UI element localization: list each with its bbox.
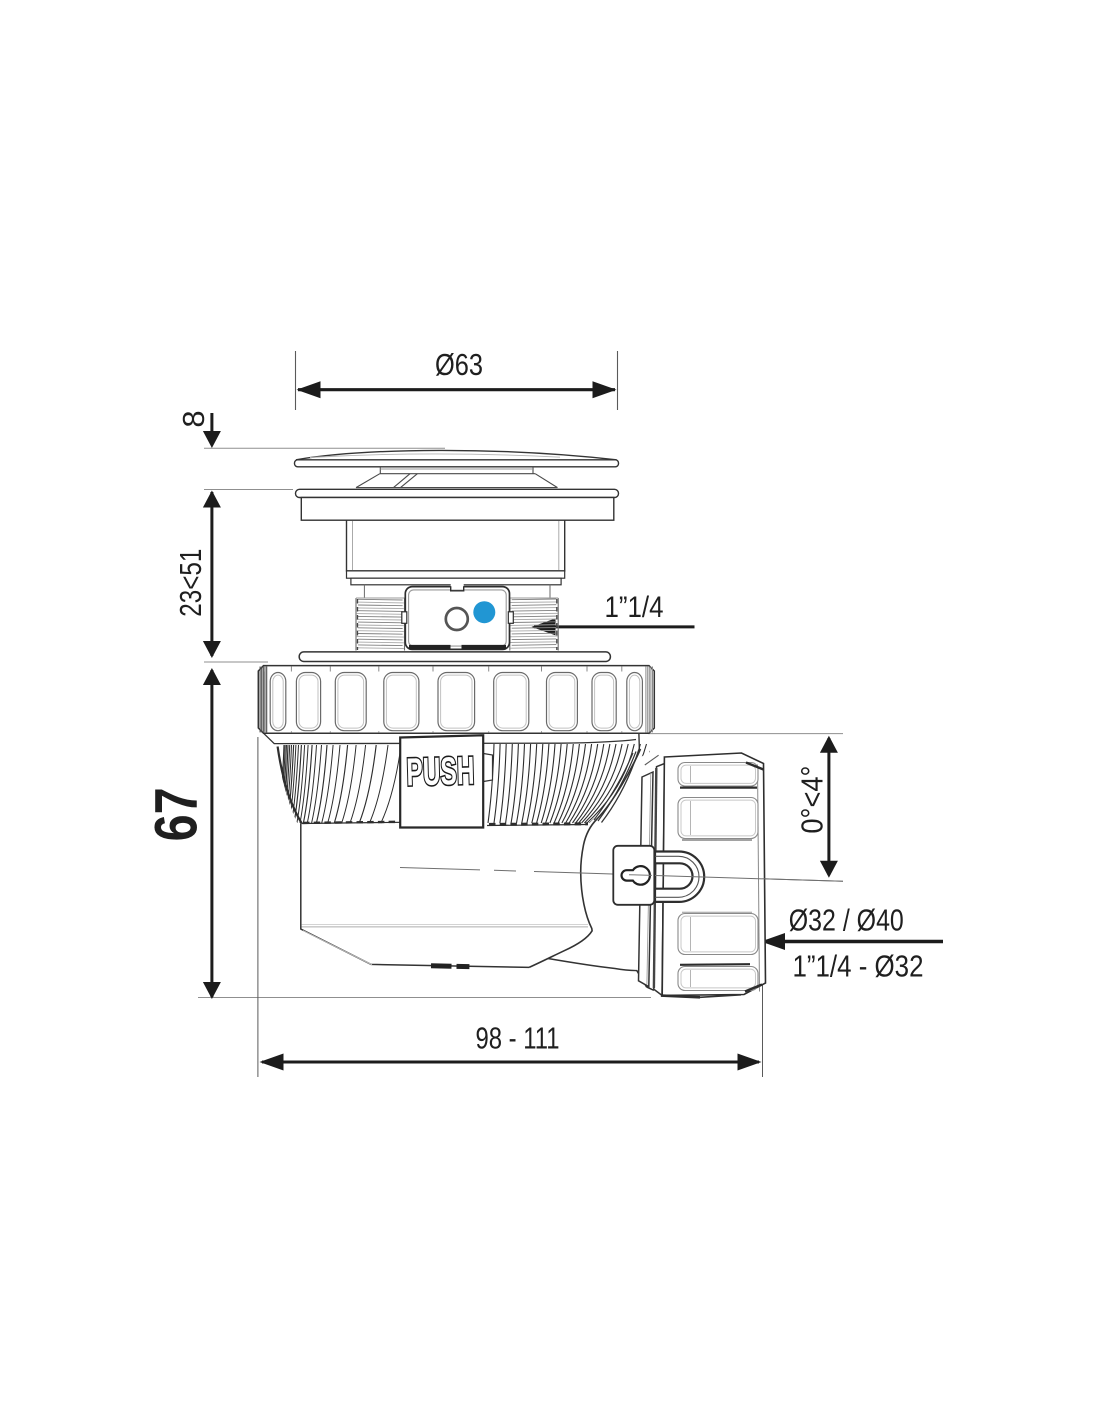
- svg-text:8: 8: [176, 410, 211, 427]
- svg-text:PUSH: PUSH: [406, 750, 475, 795]
- svg-text:1”1/4: 1”1/4: [605, 591, 664, 624]
- svg-text:Ø63: Ø63: [435, 347, 483, 382]
- svg-text:67: 67: [143, 787, 210, 841]
- svg-text:Ø32 / Ø40: Ø32 / Ø40: [789, 903, 904, 938]
- svg-text:98 - 111: 98 - 111: [476, 1021, 560, 1056]
- svg-text:1”1/4 - Ø32: 1”1/4 - Ø32: [793, 949, 924, 984]
- svg-text:0°<4°: 0°<4°: [795, 766, 830, 834]
- svg-text:23<51: 23<51: [173, 549, 208, 617]
